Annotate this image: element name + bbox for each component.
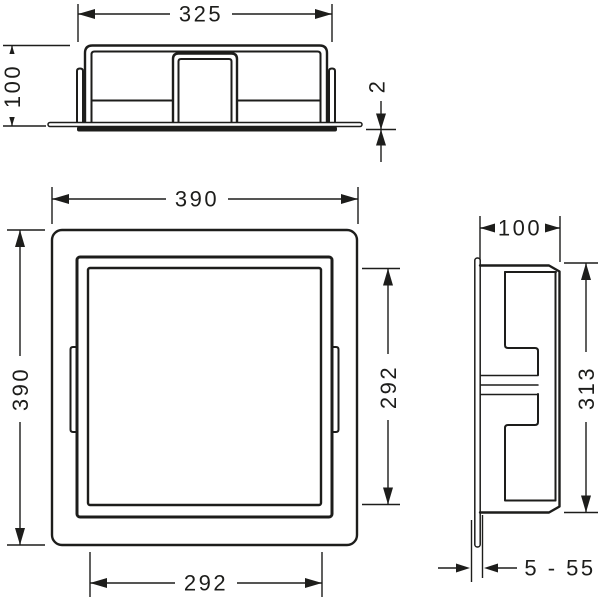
front-view: 390 390 292 xyxy=(7,187,401,598)
dimension-drawing: 325 100 2 xyxy=(0,0,600,600)
arrowhead-right xyxy=(545,224,560,233)
dim-side-depth-100: 100 xyxy=(480,216,560,263)
arrowhead-down xyxy=(376,114,386,130)
dim-label: 100 xyxy=(498,216,542,241)
arrowhead-down xyxy=(581,496,591,513)
niche-body-outline xyxy=(85,46,327,123)
front-frame-edge xyxy=(77,127,337,132)
dim-flange-thickness-2: 2 xyxy=(365,79,397,162)
arrowhead-down xyxy=(15,528,25,545)
side-view: 100 313 5 xyxy=(438,216,599,583)
dim-top-depth-100: 100 xyxy=(0,46,70,127)
dim-front-width-390: 390 xyxy=(52,187,358,225)
arrowhead-right xyxy=(456,564,470,573)
dim-label: 100 xyxy=(0,64,25,108)
arrowhead-left xyxy=(78,9,95,19)
niche-opening xyxy=(88,268,321,505)
step-profile-upper xyxy=(505,272,538,375)
dim-label: 390 xyxy=(175,187,219,212)
dim-label: 2 xyxy=(365,79,390,94)
dim-tile-range-5-55: 5 - 55 xyxy=(438,515,596,582)
center-block-outline xyxy=(173,54,237,123)
arrowhead-up xyxy=(15,230,25,247)
arrowhead-left xyxy=(90,578,107,588)
niche-body-profile xyxy=(480,266,560,513)
arrowhead-right xyxy=(315,9,332,19)
arrowhead-left xyxy=(52,194,69,204)
dim-label: 390 xyxy=(8,367,33,411)
side-clip-left xyxy=(77,69,83,123)
top-view: 325 100 2 xyxy=(0,2,396,163)
dim-front-height-390: 390 xyxy=(7,230,45,545)
arrowhead-down xyxy=(383,488,393,505)
dim-label: 313 xyxy=(574,366,599,410)
arrowhead-up xyxy=(383,269,393,286)
outer-frame xyxy=(52,230,357,545)
dim-opening-width-292: 292 xyxy=(90,552,322,597)
dim-label: 292 xyxy=(376,365,401,409)
arrowhead-left xyxy=(484,564,498,573)
dim-opening-height-292: 292 xyxy=(362,269,401,505)
flange-plate-edge xyxy=(48,123,362,127)
dim-label: 325 xyxy=(179,2,223,27)
dim-side-height-313: 313 xyxy=(564,263,599,513)
dim-label: 292 xyxy=(184,571,228,596)
dim-label: 5 - 55 xyxy=(524,556,595,581)
arrowhead-up xyxy=(376,130,386,146)
side-clip-right xyxy=(329,69,335,123)
flange-plate xyxy=(475,258,480,547)
technical-drawing-page: 325 100 2 xyxy=(0,0,600,600)
center-block-inner-line xyxy=(179,59,232,122)
inner-frame xyxy=(77,257,332,517)
dim-top-width-325: 325 xyxy=(78,2,332,43)
arrowhead-up xyxy=(581,263,591,280)
arrowhead-right xyxy=(305,578,322,588)
step-profile-lower xyxy=(505,394,538,500)
niche-body-inner-line xyxy=(92,52,321,123)
arrowhead-left xyxy=(480,224,495,233)
arrowhead-right xyxy=(341,194,358,204)
